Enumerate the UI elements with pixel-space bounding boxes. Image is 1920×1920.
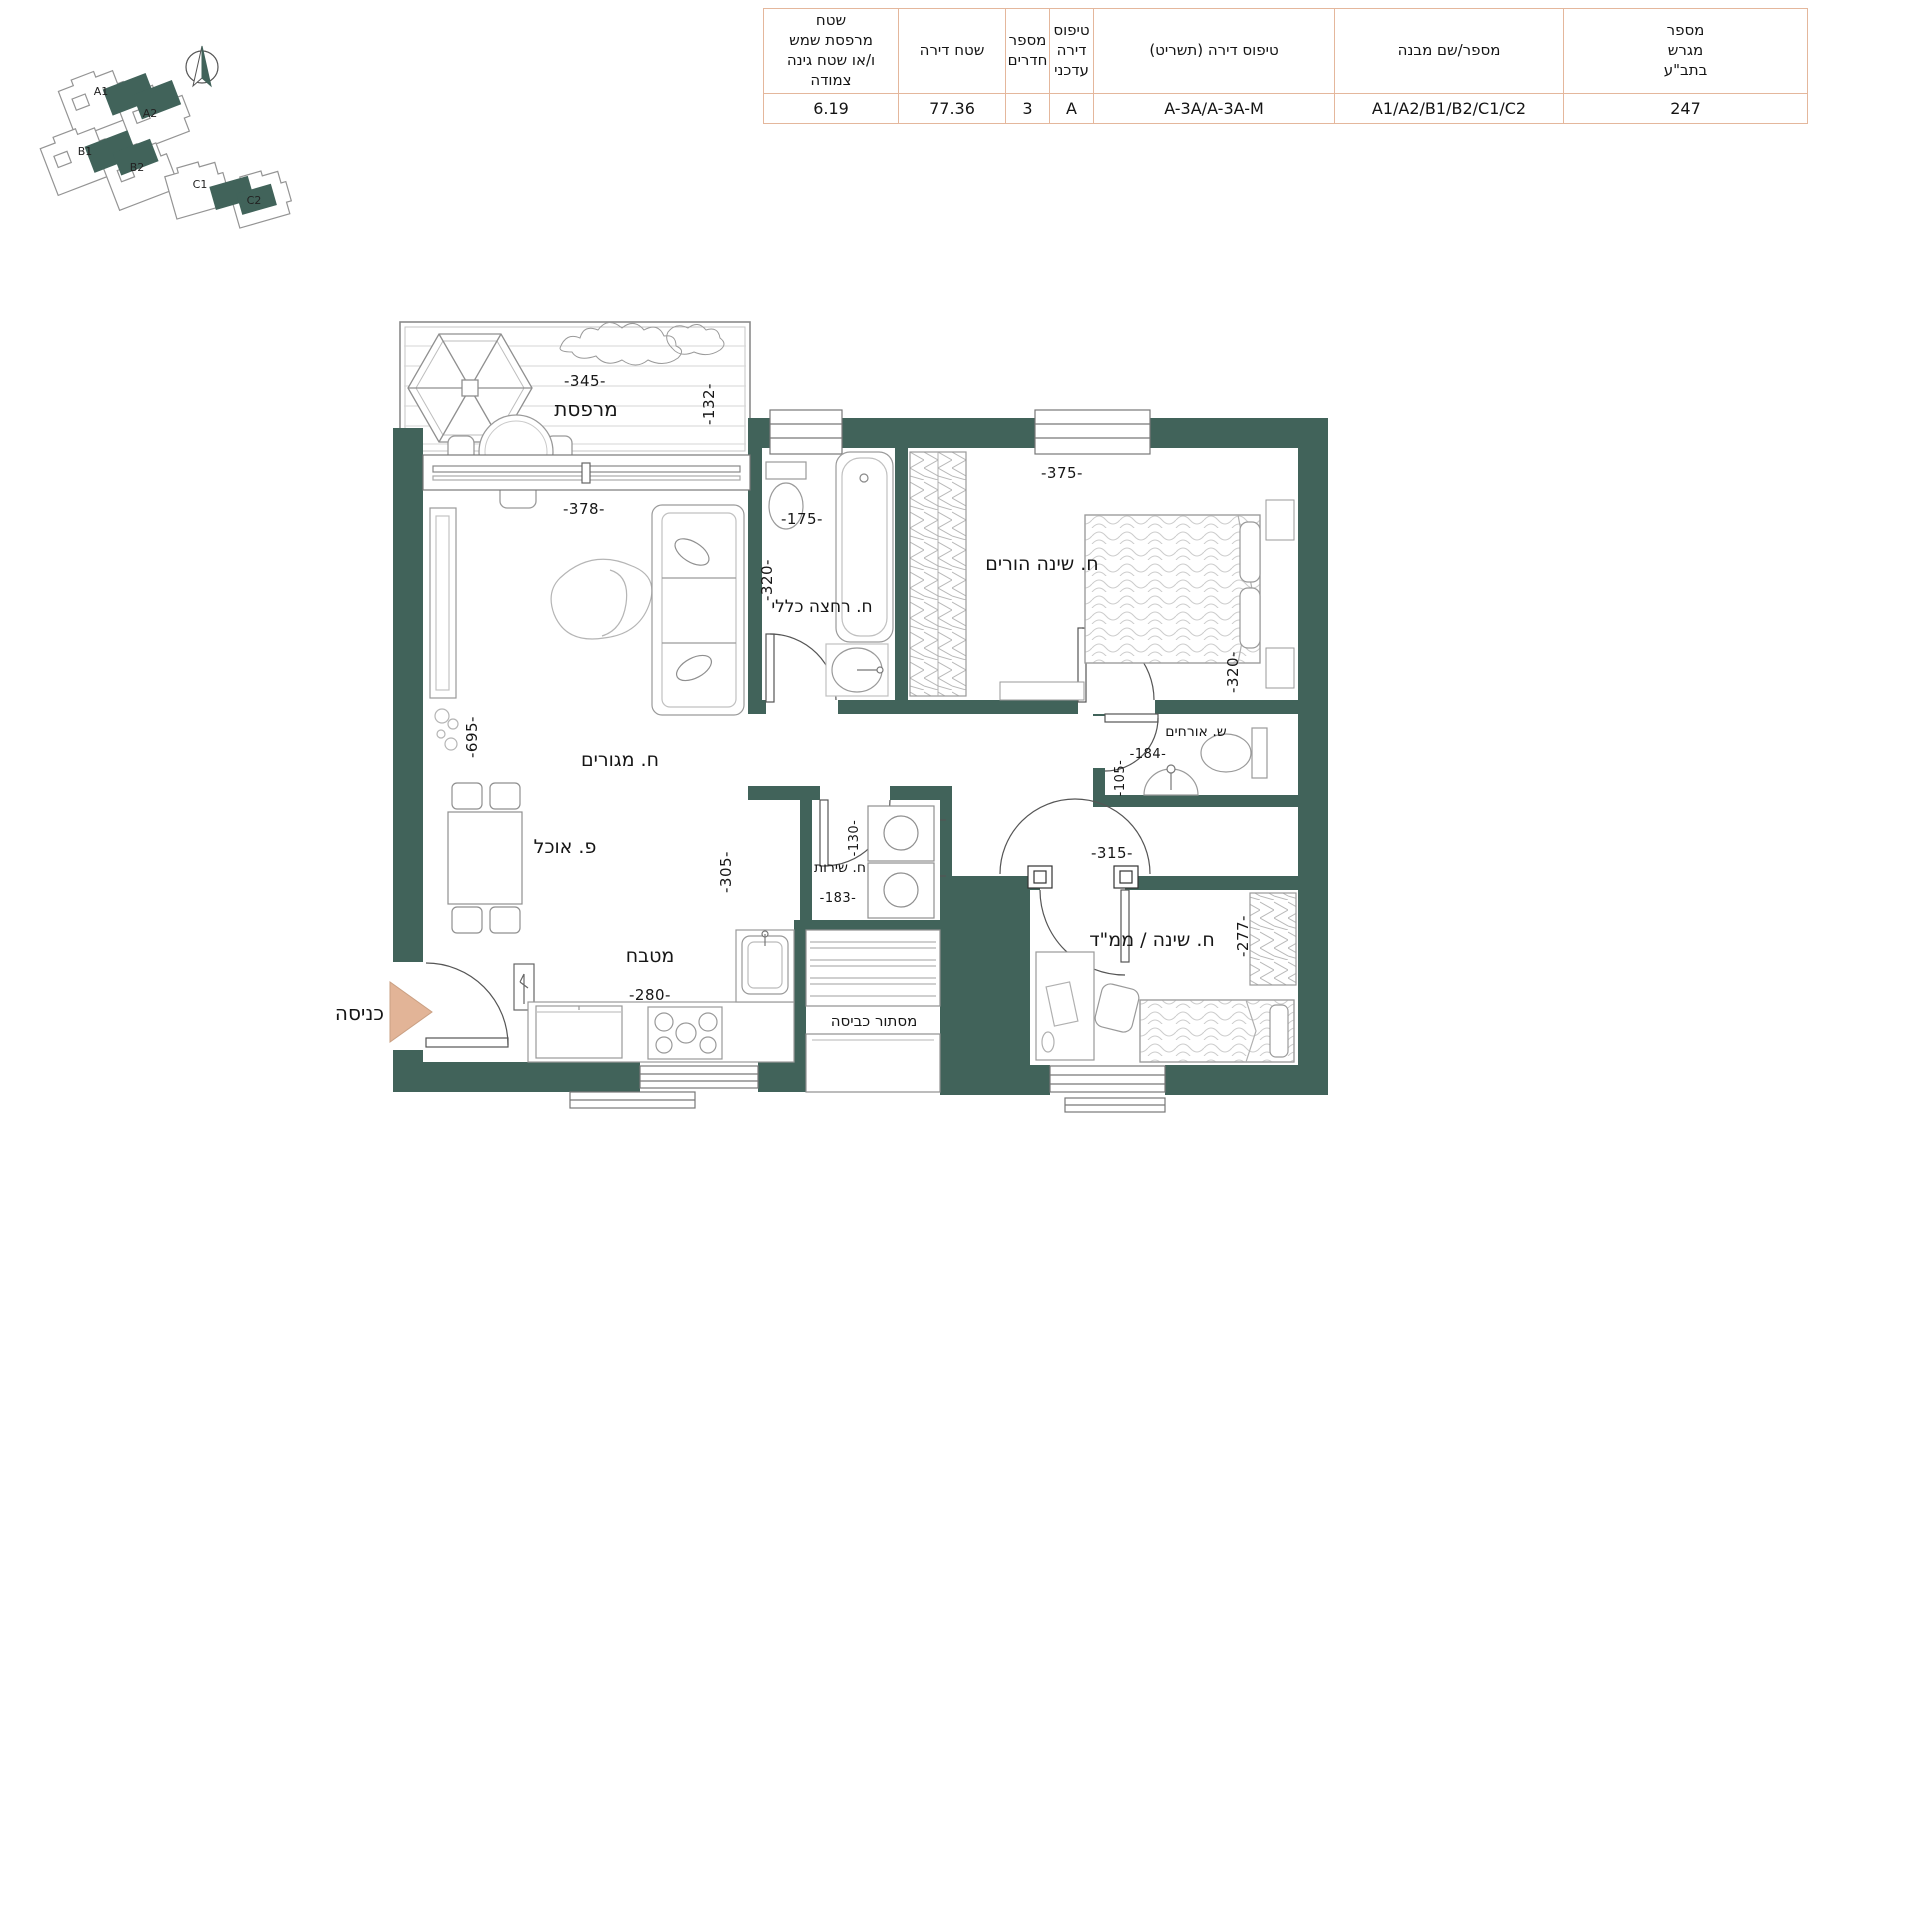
fridge [536, 1006, 622, 1058]
room-label-kitchen: מטבח [626, 945, 675, 967]
dim-living-height: -695- [463, 716, 481, 758]
spec-col-balcony-area: שטח מרפסת שמש ו/או שטח גינה צמודה 6.19 [764, 9, 898, 123]
spec-value: A [1050, 94, 1093, 123]
north-arrow-icon [186, 46, 218, 86]
building-label-b2: B2 [130, 161, 145, 174]
room-label-guest-wc: ש. אורחים [1165, 724, 1227, 740]
dim-kitchen-side: -305- [717, 851, 735, 893]
dining-furniture [448, 783, 522, 933]
stove [648, 1007, 722, 1059]
nightstand [1266, 500, 1294, 540]
floor-plan: -345- מרפסת -132- -378- -695- ח. מגורים … [335, 322, 1328, 1112]
dim-master-width: -375- [1041, 464, 1083, 482]
spec-value: 3 [1006, 94, 1049, 123]
room-label-master: ח. שינה הורים [985, 553, 1098, 575]
tv-cabinet [430, 508, 458, 750]
nightstand [1266, 648, 1294, 688]
master-bed [1085, 515, 1260, 663]
spec-header: שטח דירה [899, 9, 1005, 94]
spec-header: מספר חדרים [1006, 9, 1049, 94]
drawing: A1 A2 B1 B2 C1 C2 [0, 0, 1920, 1920]
spec-table: שטח מרפסת שמש ו/או שטח גינה צמודה 6.19 ש… [763, 8, 1808, 124]
spec-header: שטח מרפסת שמש ו/או שטח גינה צמודה [764, 9, 898, 94]
building-label-a2: A2 [143, 107, 158, 120]
bathroom-fixtures [766, 452, 893, 696]
dim-balcony-width: -345- [564, 372, 606, 390]
building-label-b1: B1 [78, 145, 93, 158]
building-label-c2: C2 [247, 194, 262, 207]
kitchen-sink [742, 931, 788, 994]
dim-mamad-width: -315- [1091, 844, 1133, 862]
spec-col-current-type: טיפוס דירה עדכני A [1049, 9, 1093, 123]
spec-col-lot: מספר מגרש בתב"ע 247 [1563, 9, 1807, 123]
room-label-balcony: מרפסת [554, 397, 618, 421]
room-label-living: ח. מגורים [581, 749, 659, 771]
dim-guest-wc-height: -105- [1113, 760, 1128, 797]
spec-value: 6.19 [764, 94, 898, 123]
room-label-mamad: ח. שינה / ממ"ד [1089, 929, 1215, 951]
laundry-screen [806, 930, 940, 1092]
dim-master-height: -320- [1224, 651, 1242, 693]
floorplan-sheet: A1 A2 B1 B2 C1 C2 [0, 0, 1920, 1920]
spec-col-building: מספר/שם מבנה A1/A2/B1/B2/C1/C2 [1334, 9, 1563, 123]
spec-header: מספר/שם מבנה [1335, 9, 1563, 94]
room-label-bathroom: ח. רחצה כללי [771, 597, 872, 617]
spec-header: מספר מגרש בתב"ע [1564, 9, 1807, 94]
spec-header: טיפוס דירה עדכני [1050, 9, 1093, 94]
entrance-label: כניסה [335, 1001, 384, 1025]
spec-value: A1/A2/B1/B2/C1/C2 [1335, 94, 1563, 123]
mamad-bed [1140, 1000, 1294, 1062]
dim-service-width: -183- [820, 891, 857, 906]
dresser [1000, 682, 1084, 700]
dim-balcony-depth: -132- [700, 383, 718, 425]
sofa [652, 505, 744, 715]
spec-col-plan-type: טיפוס דירה (תשריט) A-3A/A-3A-M [1093, 9, 1334, 123]
mamad-furniture [1036, 893, 1296, 1062]
spec-value: 77.36 [899, 94, 1005, 123]
building-label-a1: A1 [94, 85, 109, 98]
dim-kitchen-width: -280- [629, 986, 671, 1004]
building-cluster-c [163, 140, 294, 244]
room-label-service: ח. שירות [814, 860, 866, 876]
building-label-c1: C1 [193, 178, 208, 191]
service-room-fixtures [868, 806, 946, 918]
dim-guest-wc-width: -184- [1130, 747, 1167, 762]
dim-mamad-height: -277- [1234, 915, 1252, 957]
desk [1036, 952, 1141, 1060]
spec-col-apartment-area: שטח דירה 77.36 [898, 9, 1005, 123]
spec-header: טיפוס דירה (תשריט) [1094, 9, 1334, 94]
site-plan: A1 A2 B1 B2 C1 C2 [38, 45, 295, 244]
rug [551, 559, 652, 639]
dim-bathroom-height: -320- [758, 559, 776, 601]
living-room-furniture [430, 505, 744, 750]
dim-bathroom-width: -175- [781, 510, 823, 528]
spec-value: A-3A/A-3A-M [1094, 94, 1334, 123]
room-label-laundry: מסתור כביסה [831, 1012, 918, 1030]
room-label-dining: פ. אוכל [534, 836, 597, 858]
mamad-wardrobe [1250, 893, 1296, 985]
spec-col-rooms: מספר חדרים 3 [1005, 9, 1049, 123]
dim-living-width: -378- [563, 500, 605, 518]
dim-service-height: -130- [847, 820, 862, 857]
bathroom-sink [826, 644, 888, 696]
spec-value: 247 [1564, 94, 1807, 123]
master-closet [910, 452, 966, 696]
